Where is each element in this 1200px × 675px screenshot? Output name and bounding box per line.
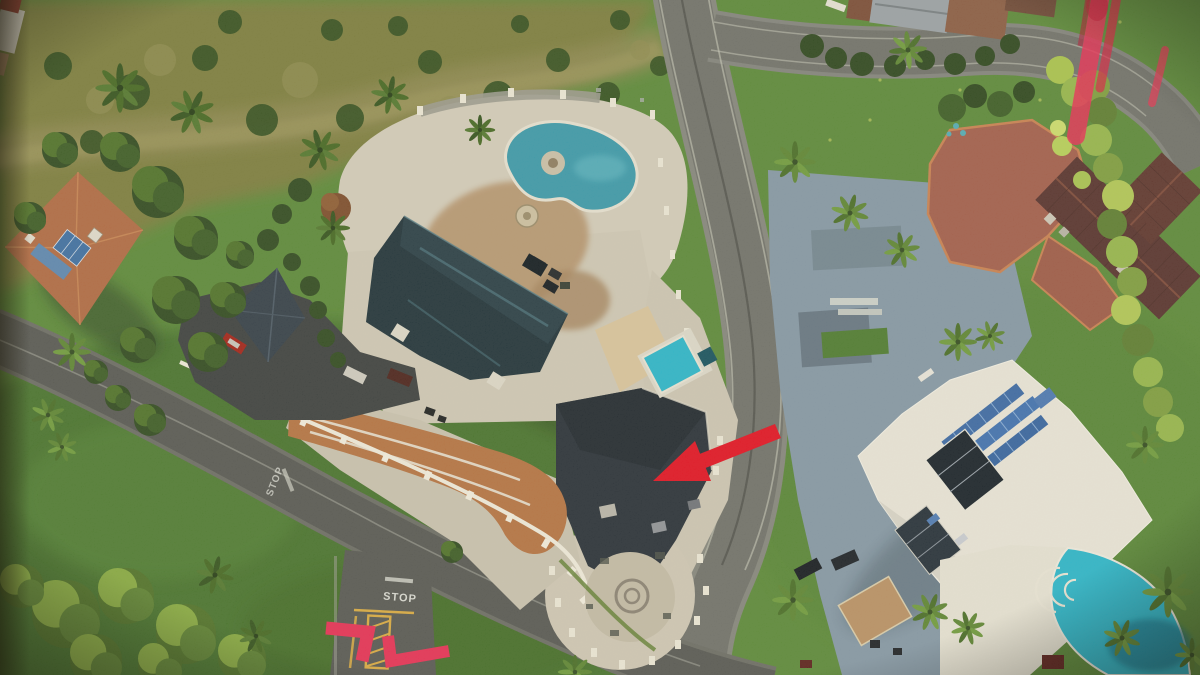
vignette-overlay: [0, 0, 1200, 675]
aerial-map-view: STOP STOP: [0, 0, 1200, 675]
aerial-map-screenshot: STOP STOP: [0, 0, 1200, 675]
left-edge-shade: [0, 0, 30, 675]
